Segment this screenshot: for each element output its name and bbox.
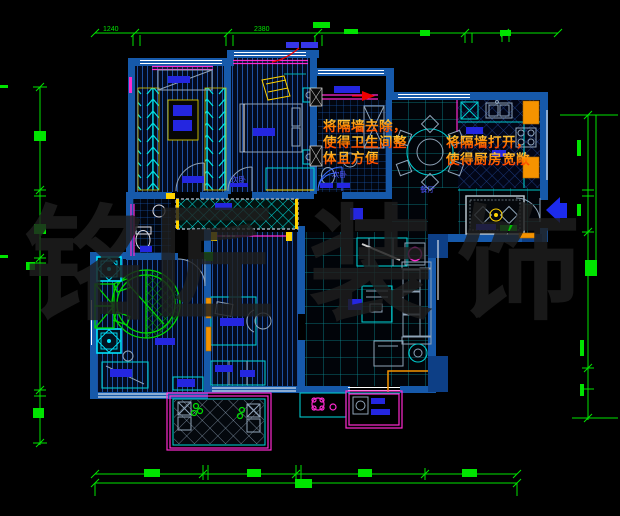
cad-floorplan-screenshot: 1240 2380 [0,0,620,516]
dimension-bottom [91,465,521,496]
annotation-line: 使得卫生间整 [322,134,407,151]
annotation-line: 使得厨房宽敞 [445,151,530,168]
room-label-bedroom2b: 次卧 [332,169,347,179]
floorplan-canvas: 1240 2380 [0,0,620,516]
annotation-line: 体且方便 [323,150,379,167]
dimension-top: 1240 2380 [91,22,562,46]
dim-block [313,22,330,28]
dim-block [500,30,511,36]
room-label-bedroom2: 次卧 [231,174,246,184]
wardrobe-left [138,88,159,190]
watermark-char: 铭 [24,193,148,338]
dim-top-left-value: 1240 [103,26,119,33]
label-block [182,176,204,183]
washing-machine [353,397,368,414]
cabinet-orange [523,101,539,124]
dim-top-mid-value: 2380 [254,26,270,33]
floor-balcony [174,400,264,444]
leader-text-block [301,42,318,48]
watermark-char: 装 [309,193,433,338]
dim-block [344,29,358,34]
watermark-char: 饰 [457,193,581,338]
dim-block [420,30,430,36]
balcony-small [346,391,402,428]
leader-text-block [286,42,299,48]
annotation-line: 将隔墙打开， [446,134,530,151]
plant-icon [312,398,324,410]
wardrobe-right [205,88,226,190]
plant-box-bay [300,393,346,417]
watermark-char: 匠 [152,193,276,338]
annotation-line: 将隔墙去除， [323,118,407,135]
